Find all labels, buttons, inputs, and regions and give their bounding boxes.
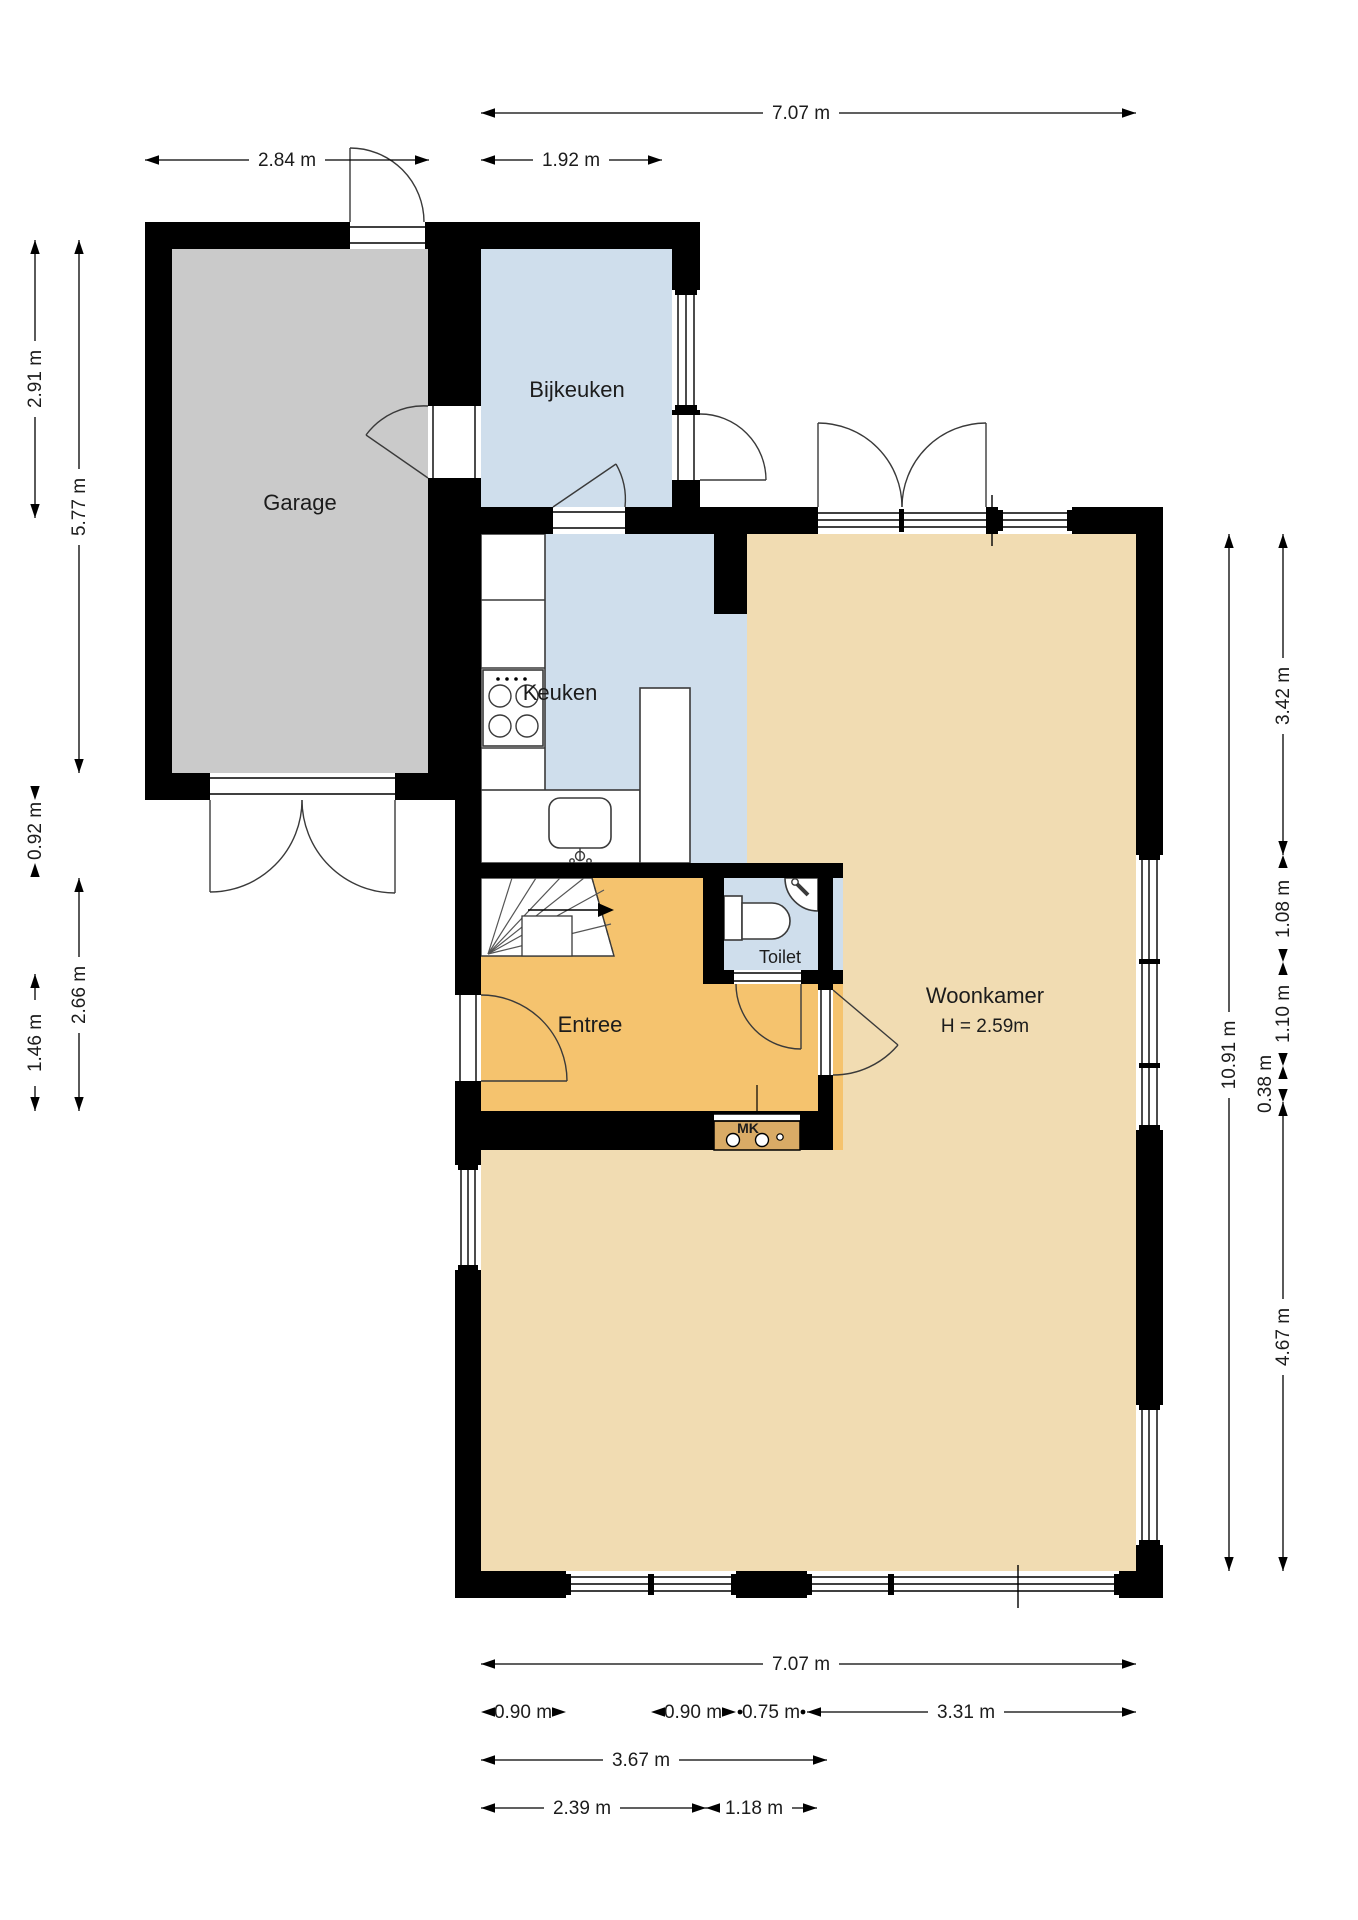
dimension-right-467: 4.67 m [1273,1102,1294,1571]
window-mullion [1139,959,1160,964]
meter-icon [777,1134,783,1140]
dimension-top-192: 1.92 m [481,150,662,171]
window-bottom-left [566,1571,736,1598]
stove-knob [505,677,509,681]
svg-text:4.67 m: 4.67 m [1273,1308,1294,1366]
dimension-bottom-090b: 0.90 m [651,1702,736,1723]
door-swing-arc [302,800,395,893]
dimension-left-577: 5.77 m [69,240,90,773]
window-mullion [648,1574,654,1595]
window-post [1114,1574,1119,1595]
dimension-top-284: 2.84 m [145,150,429,171]
window-post [675,405,697,410]
svg-text:0.90 m: 0.90 m [494,1702,552,1723]
dimensions-right: 10.91 m 3.42 m 1.08 m 1.10 m 0.38 m [1219,534,1294,1571]
kitchen-island [640,688,690,863]
svg-text:3.42 m: 3.42 m [1273,667,1294,725]
label-woonkamer-height: H = 2.59m [941,1016,1029,1037]
window-post [731,1574,736,1595]
door-swing-arc [350,148,424,222]
dimension-bottom-118: 1.18 m [706,1798,817,1819]
svg-text:3.67 m: 3.67 m [612,1750,670,1771]
window-post [1139,1540,1160,1545]
sink-icon [549,798,611,848]
door-gap [818,990,833,1075]
mk-label: MK [737,1120,759,1136]
stair-landing [522,916,572,956]
room-fills [145,222,1163,1598]
dimension-bottom-331: 3.31 m [807,1702,1136,1723]
door-french-woonkamer [818,423,992,546]
svg-text:10.91 m: 10.91 m [1219,1021,1240,1090]
label-entree: Entree [558,1012,623,1037]
window-bijkeuken [672,290,700,410]
window-post [458,1165,478,1170]
wall-kitchen-stub [714,534,747,614]
dimension-bottom-239: 2.39 m [481,1798,706,1819]
svg-text:1.46 m: 1.46 m [25,1014,46,1072]
door-bijkeuken-back [672,414,766,480]
door-gap [455,995,481,1081]
door-garage-double [210,773,395,893]
door-swing-arc [700,414,766,480]
door-center-post [899,509,904,532]
door-gap [553,507,625,534]
dimension-left-092: 0.92 m [25,786,46,877]
svg-text:2.91 m: 2.91 m [25,350,46,408]
svg-text:0.38 m: 0.38 m [1255,1055,1276,1113]
door-gap [350,222,425,249]
door-swing-arc [902,423,986,507]
window-post [1139,1125,1160,1130]
door-swing-arc [818,423,902,507]
window-post [1067,510,1072,531]
dimension-right-1091: 10.91 m [1219,534,1240,1571]
window-right-lower [1136,1405,1163,1545]
toilet-cistern [724,896,742,940]
svg-text:2.84 m: 2.84 m [258,150,316,171]
svg-text:2.66 m: 2.66 m [69,966,90,1024]
svg-text:5.77 m: 5.77 m [69,478,90,536]
svg-text:1.92 m: 1.92 m [542,150,600,171]
svg-text:7.07 m: 7.07 m [772,103,830,124]
svg-text:0.75 m: 0.75 m [742,1702,800,1723]
door-swing-arc [210,800,302,892]
dimension-left-291: 2.91 m [25,240,46,518]
dimension-bottom-707: 7.07 m [481,1654,1136,1675]
door-gap [672,415,700,480]
door-gap [210,773,395,800]
window-post [1139,855,1160,860]
window-left-lower [455,1165,481,1270]
window-post [807,1574,812,1595]
dimension-top-707: 7.07 m [481,103,1136,124]
window-post [998,510,1003,531]
floor-plan: MK [0,0,1358,1920]
svg-text:1.08 m: 1.08 m [1273,880,1294,938]
dimension-left-266: 2.66 m [69,878,90,1111]
dimension-bottom-075: 0.75 m [738,1702,806,1723]
label-bijkeuken: Bijkeuken [529,377,624,402]
window-mullion [1139,1063,1160,1068]
wall-garage-main-shared [428,222,481,800]
door-garage-top [350,148,425,249]
svg-text:0.90 m: 0.90 m [664,1702,722,1723]
door-gap [734,970,801,984]
window-post [1139,1405,1160,1410]
window-top-right [998,507,1072,534]
stove-knob [496,677,500,681]
window-post [675,290,697,295]
stove-knob [514,677,518,681]
floor-plan-page: MK [0,0,1358,1920]
dimension-right-108: 1.08 m [1273,855,1294,962]
toilet-bowl-icon [742,903,790,939]
svg-text:0.92 m: 0.92 m [25,802,46,860]
wall-keuken-entree [455,863,843,878]
dimension-bottom-367: 3.67 m [481,1750,827,1771]
dimensions-bottom: 7.07 m 0.90 m 0.90 m 0.75 m 3.31 m [481,1654,1136,1819]
door-gap [428,406,481,478]
svg-text:1.10 m: 1.10 m [1273,985,1294,1043]
svg-text:7.07 m: 7.07 m [772,1654,830,1675]
dimensions-top: 7.07 m 2.84 m 1.92 m [145,103,1136,171]
dimension-bottom-090a: 0.90 m [481,1702,566,1723]
dimension-left-146: 1.46 m [25,974,46,1111]
svg-text:2.39 m: 2.39 m [553,1798,611,1819]
label-woonkamer: Woonkamer [926,983,1044,1008]
label-garage: Garage [263,490,336,515]
dimensions-left: 2.91 m 5.77 m 0.92 m 2.66 m 1.46 m [25,240,90,1111]
label-toilet: Toilet [759,947,801,967]
wall-garage-left [145,222,172,800]
staircase [481,878,614,956]
window-post [566,1574,571,1595]
window-mullion [888,1574,894,1595]
dimension-right-110: 1.10 m [1273,962,1294,1066]
dimension-right-342: 3.42 m [1273,534,1294,855]
svg-text:1.18 m: 1.18 m [725,1798,783,1819]
window-bottom-right [807,1565,1119,1608]
svg-text:3.31 m: 3.31 m [937,1702,995,1723]
label-keuken: Keuken [523,680,598,705]
wall-toilet-left [703,878,724,970]
window-right-upper [1136,855,1163,1130]
window-post [458,1265,478,1270]
